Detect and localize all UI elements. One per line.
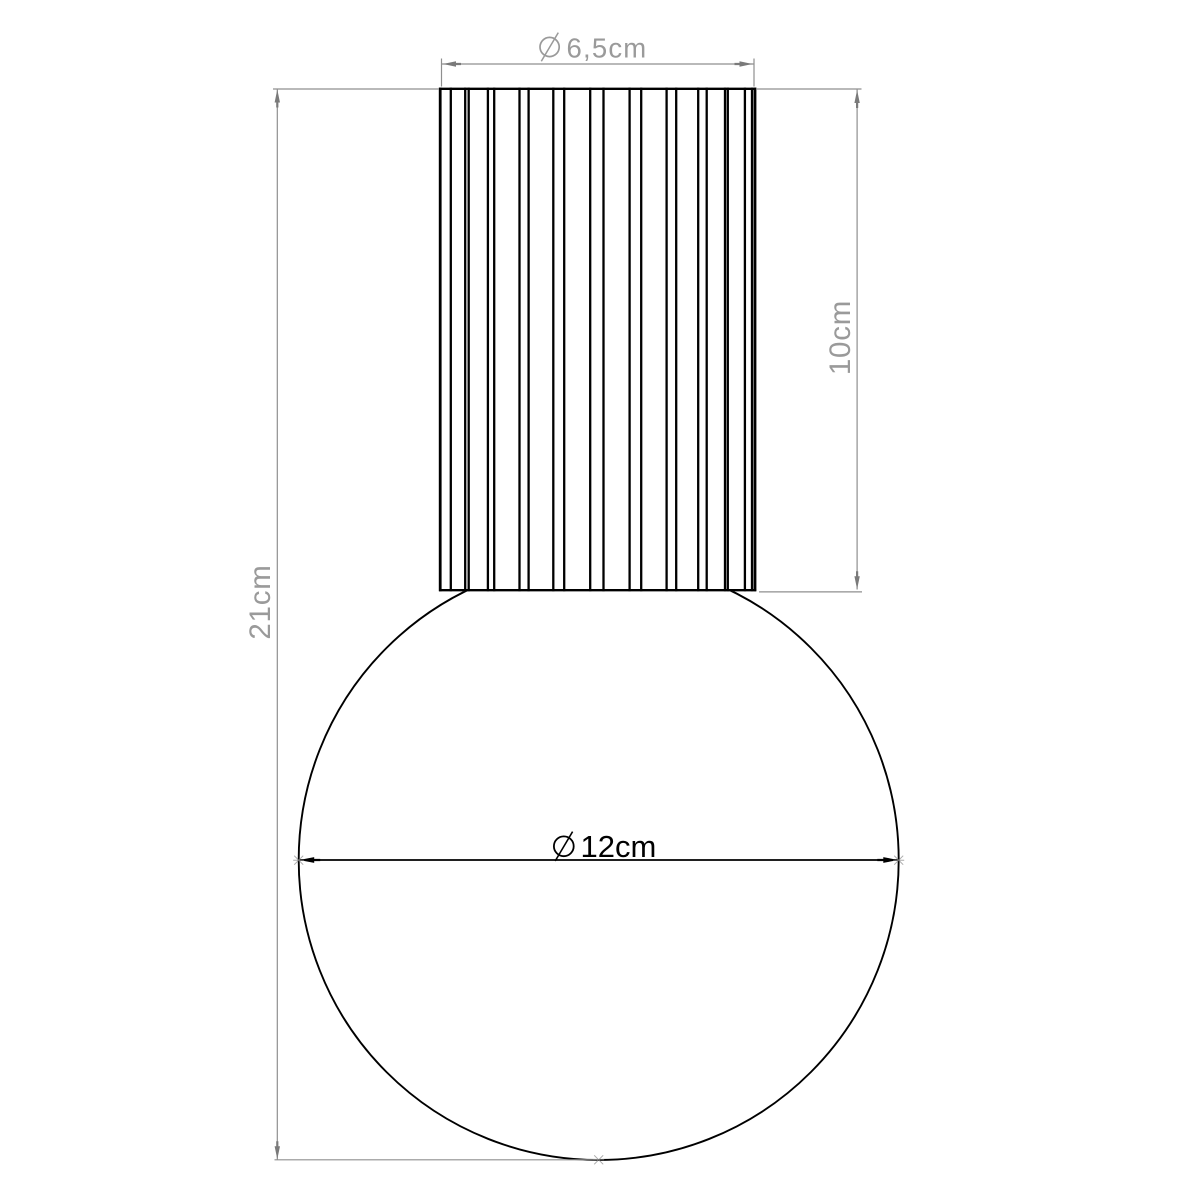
svg-text:6,5cm: 6,5cm (567, 32, 648, 63)
svg-text:21cm: 21cm (244, 564, 277, 639)
svg-text:10cm: 10cm (824, 300, 857, 375)
svg-text:12cm: 12cm (581, 829, 657, 864)
